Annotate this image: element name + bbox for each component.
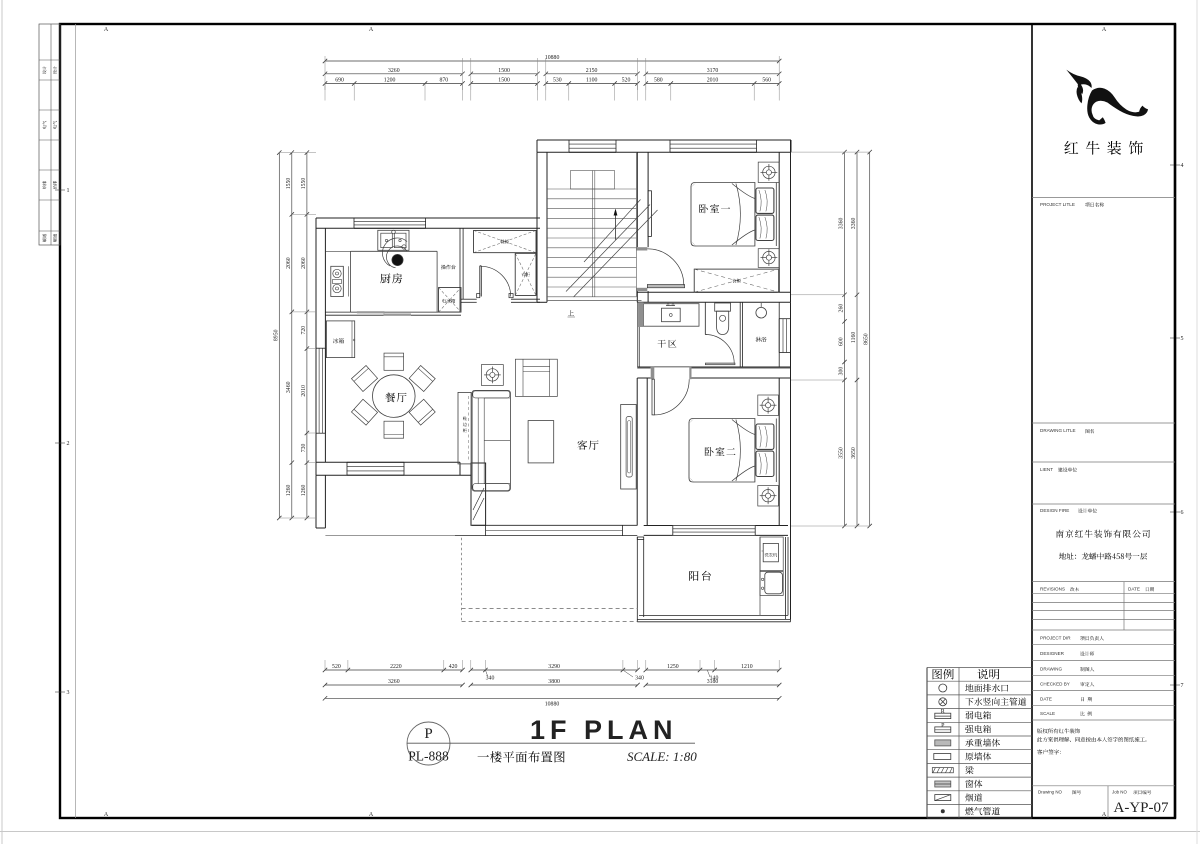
svg-text:3180: 3180 [707, 679, 719, 685]
svg-text:2060: 2060 [286, 257, 292, 269]
svg-text:2060: 2060 [301, 257, 307, 269]
svg-text:520: 520 [622, 78, 631, 84]
svg-text:6: 6 [1181, 510, 1184, 516]
svg-text:340: 340 [486, 676, 495, 682]
svg-text:A: A [1102, 27, 1107, 33]
svg-text:Job NO: Job NO [1112, 790, 1127, 795]
svg-text:DRAWING: DRAWING [1040, 667, 1062, 672]
svg-text:PROJECT DIR: PROJECT DIR [1040, 636, 1071, 641]
svg-text:DATE: DATE [1040, 697, 1052, 702]
svg-text:1: 1 [67, 188, 70, 194]
svg-text:420: 420 [449, 664, 458, 670]
svg-text:560: 560 [762, 78, 771, 84]
svg-text:4: 4 [1181, 163, 1184, 169]
svg-text:1210: 1210 [741, 664, 753, 670]
svg-text:2150: 2150 [586, 68, 598, 74]
svg-text:3260: 3260 [388, 68, 400, 74]
svg-text:340: 340 [635, 676, 644, 682]
svg-text:1550: 1550 [286, 178, 292, 190]
svg-text:P: P [424, 726, 432, 742]
svg-text:580: 580 [654, 78, 663, 84]
svg-text:3360: 3360 [839, 218, 845, 230]
svg-text:PROJECT LITLE: PROJECT LITLE [1040, 202, 1075, 207]
svg-text:8650: 8650 [864, 333, 870, 345]
svg-text:SCALE: SCALE [1040, 711, 1055, 716]
svg-text:PL-888: PL-888 [408, 749, 449, 764]
svg-text:3170: 3170 [707, 68, 719, 74]
svg-text:3: 3 [67, 690, 70, 696]
svg-text:2010: 2010 [707, 78, 719, 84]
svg-text:260: 260 [839, 304, 845, 313]
svg-text:DRAWING LITLE: DRAWING LITLE [1040, 428, 1076, 433]
svg-text:600: 600 [839, 337, 845, 346]
svg-text:520: 520 [332, 664, 341, 670]
svg-text:730: 730 [301, 443, 307, 452]
svg-text:A: A [104, 812, 109, 818]
svg-text:3260: 3260 [388, 679, 400, 685]
svg-text:1260: 1260 [286, 485, 292, 497]
svg-text:1500: 1500 [498, 68, 510, 74]
svg-text:REVISIONS: REVISIONS [1040, 587, 1065, 592]
svg-text:DATE: DATE [1128, 587, 1140, 592]
svg-text:1260: 1260 [301, 485, 307, 497]
svg-text:10880: 10880 [545, 702, 560, 708]
svg-text:1500: 1500 [498, 78, 510, 84]
svg-text:3360: 3360 [851, 218, 857, 230]
svg-text:1160: 1160 [851, 332, 857, 343]
svg-text:3460: 3460 [286, 381, 292, 393]
svg-text:A: A [369, 27, 374, 33]
svg-text:530: 530 [553, 78, 562, 84]
svg-text:3800: 3800 [548, 679, 560, 685]
svg-text:690: 690 [335, 78, 344, 84]
svg-text:2: 2 [67, 441, 70, 447]
svg-text:3550: 3550 [839, 447, 845, 459]
svg-text:1F PLAN: 1F PLAN [530, 715, 678, 745]
svg-text:DESIGNER: DESIGNER [1040, 651, 1065, 656]
svg-text:R: R [941, 709, 945, 715]
svg-text:A-YP-07: A-YP-07 [1114, 800, 1169, 816]
svg-text:720: 720 [301, 326, 307, 335]
svg-text:1200: 1200 [384, 78, 396, 84]
svg-text:5: 5 [1181, 336, 1184, 342]
svg-text:A: A [1102, 812, 1107, 818]
svg-text:1100: 1100 [586, 78, 597, 84]
svg-text:870: 870 [439, 78, 448, 84]
svg-text:SCALE: 1:80: SCALE: 1:80 [627, 749, 697, 764]
svg-text:10880: 10880 [545, 55, 560, 61]
svg-text:3290: 3290 [548, 664, 560, 670]
svg-text:1250: 1250 [667, 664, 679, 670]
svg-text:300: 300 [839, 367, 845, 376]
svg-text:DESIGN FIRE: DESIGN FIRE [1040, 508, 1069, 513]
svg-text:2010: 2010 [301, 385, 307, 397]
svg-text:2220: 2220 [390, 664, 402, 670]
svg-text:A: A [104, 27, 109, 33]
svg-text:8950: 8950 [273, 329, 279, 341]
svg-text:CHECKED BY: CHECKED BY [1040, 682, 1070, 687]
svg-text:7: 7 [1181, 683, 1184, 689]
svg-text:LIENT: LIENT [1040, 467, 1053, 472]
svg-text:3650: 3650 [851, 447, 857, 459]
svg-text:Drawing NO: Drawing NO [1038, 790, 1062, 795]
svg-text:A: A [369, 812, 374, 818]
svg-text:1550: 1550 [301, 178, 307, 190]
